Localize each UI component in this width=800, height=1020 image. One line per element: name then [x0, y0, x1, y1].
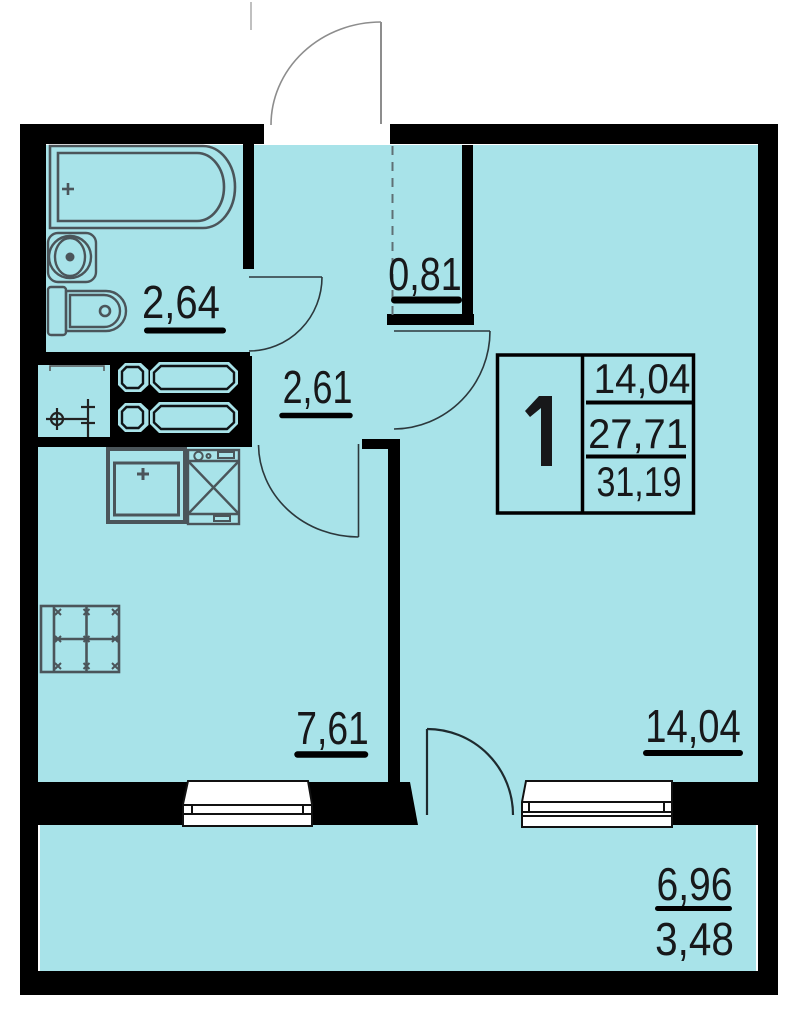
svg-text:31,19: 31,19	[596, 459, 681, 506]
svg-text:6,96: 6,96	[656, 859, 732, 911]
svg-text:7,61: 7,61	[296, 702, 369, 754]
svg-text:2,61: 2,61	[283, 362, 353, 413]
svg-text:14,04: 14,04	[645, 701, 741, 752]
svg-text:2,64: 2,64	[142, 277, 220, 328]
svg-text:0,81: 0,81	[388, 248, 461, 299]
svg-text:14,04: 14,04	[594, 354, 691, 402]
svg-text:3,48: 3,48	[655, 915, 734, 966]
svg-text:27,71: 27,71	[588, 410, 688, 457]
